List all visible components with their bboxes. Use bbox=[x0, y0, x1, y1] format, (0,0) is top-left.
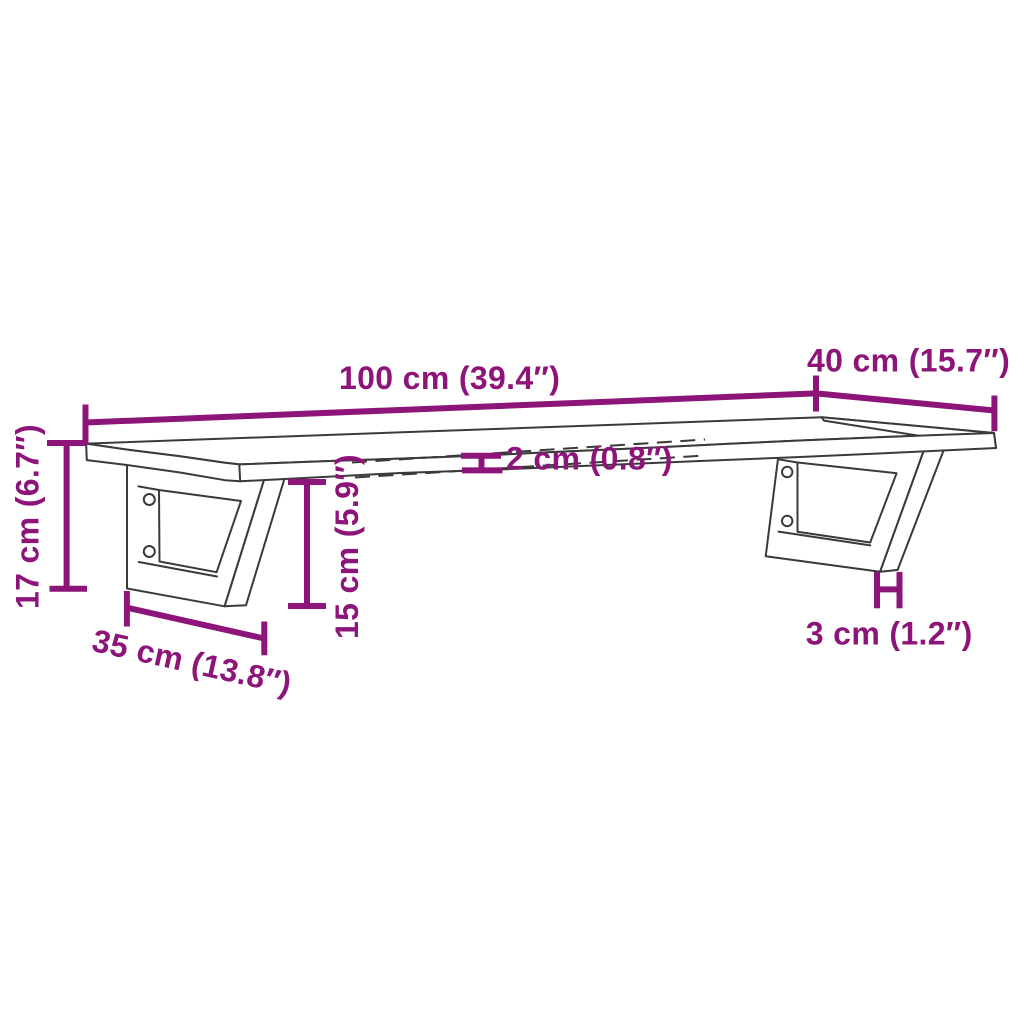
svg-text:15 cm (5.9″): 15 cm (5.9″) bbox=[329, 454, 365, 639]
svg-text:100 cm (39.4″): 100 cm (39.4″) bbox=[339, 360, 560, 396]
svg-text:2 cm (0.8″): 2 cm (0.8″) bbox=[506, 441, 673, 477]
svg-text:3 cm (1.2″): 3 cm (1.2″) bbox=[806, 616, 973, 652]
svg-text:17 cm (6.7″): 17 cm (6.7″) bbox=[10, 424, 46, 609]
svg-text:40 cm (15.7″): 40 cm (15.7″) bbox=[807, 343, 1010, 379]
